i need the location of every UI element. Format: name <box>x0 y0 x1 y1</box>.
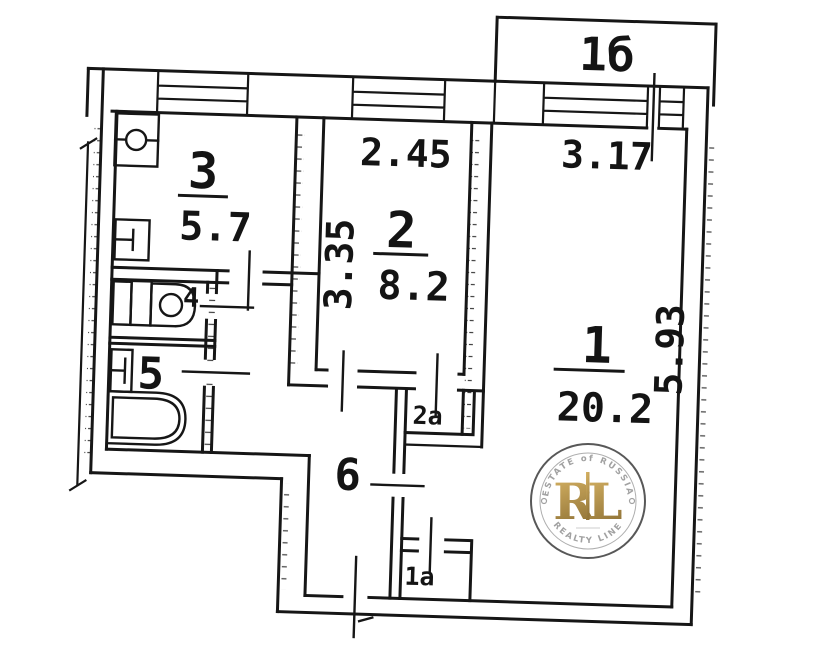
kitchen-window-icon <box>157 71 248 116</box>
closet-1a-label: 1а <box>404 562 435 592</box>
room2-window-icon <box>352 77 445 122</box>
floor-plan-scan: 1б 3 5.7 2.45 3.35 2 8.2 3.17 5.93 1 20.… <box>0 0 837 650</box>
kitchen-basin-icon <box>114 219 149 260</box>
room3-number: 3 <box>187 142 219 201</box>
watermark-stamp: ESTATE of RUSSIA REALTY LINE R L <box>531 444 645 558</box>
room2-area: 8.2 <box>377 263 451 311</box>
closet-2a-label: 2а <box>412 401 443 431</box>
room1-door-icon <box>371 484 423 486</box>
room6-number: 6 <box>334 449 362 501</box>
room1-underline <box>555 369 623 371</box>
room2-width-dim: 2.45 <box>359 130 452 177</box>
room1-area: 20.2 <box>556 384 654 433</box>
room2-underline <box>375 253 427 255</box>
room2-number: 2 <box>385 201 417 260</box>
room5-number: 5 <box>137 348 165 400</box>
room1-window-icon <box>543 83 648 128</box>
room2-height-dim: 3.35 <box>316 218 363 311</box>
wc-door-icon <box>201 306 253 308</box>
watermark-monogram-l: L <box>587 472 622 531</box>
balcony-side-window-icon <box>659 86 684 129</box>
room3-area: 5.7 <box>179 203 253 251</box>
kitchen-sink-icon <box>114 113 159 166</box>
balcony-label: 1б <box>579 27 636 83</box>
floor-plan-svg: 1б 3 5.7 2.45 3.35 2 8.2 3.17 5.93 1 20.… <box>0 0 837 650</box>
room1-width-dim: 3.17 <box>560 132 653 179</box>
room3-underline <box>179 195 226 196</box>
room2-door-icon <box>342 352 344 411</box>
balcony-wall-junction <box>494 81 495 123</box>
bath-door-icon <box>183 372 249 374</box>
room1-number: 1 <box>581 316 613 375</box>
wc-cistern-icon <box>112 280 151 325</box>
kitchen-door-icon <box>248 252 250 310</box>
room1-height-dim: 5.93 <box>646 303 693 396</box>
bath-basin-icon <box>110 349 132 392</box>
apartment-drawing: 1б 3 5.7 2.45 3.35 2 8.2 3.17 5.93 1 20.… <box>66 4 718 648</box>
room4-number: 4 <box>183 282 200 313</box>
